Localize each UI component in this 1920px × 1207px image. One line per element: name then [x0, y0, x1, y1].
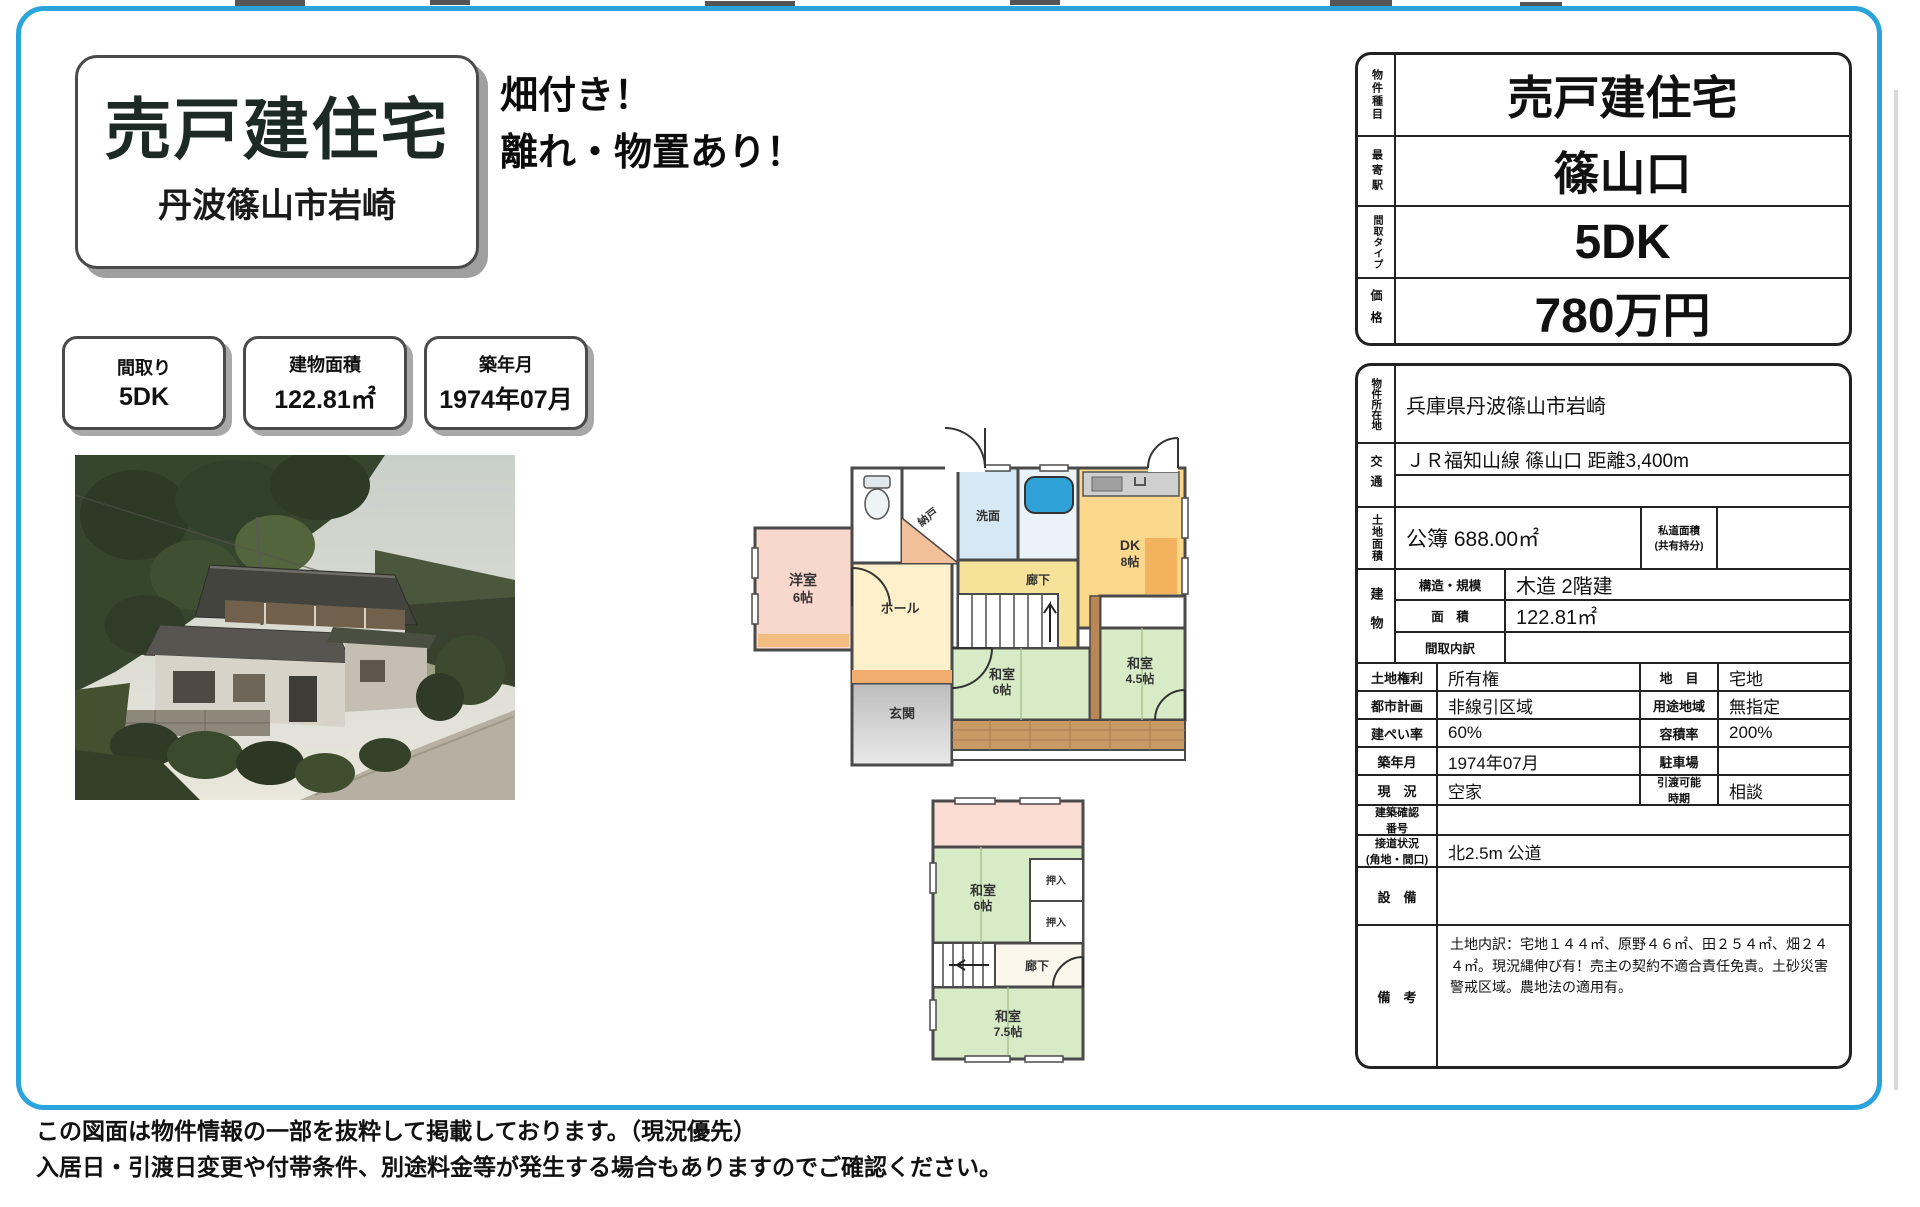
catch-line-2: 離れ・物置あり！ — [500, 125, 804, 182]
row-value: 兵庫県丹波篠山市岩崎 — [1396, 366, 1849, 442]
detail-row-current-state: 現 況 空家 引渡可能 時期 相談 — [1358, 774, 1849, 804]
pair-label-2: 容積率 — [1641, 720, 1719, 746]
detail-row-land-area: 土地面積 公簿 688.00㎡ 私道面積 (共有持分) — [1358, 506, 1849, 568]
summary-row-type: 物件種目 売戸建住宅 — [1358, 55, 1849, 135]
floorplan-2f: 和室 6帖 押入 押入 廊下 和室 7.5帖 — [925, 795, 1090, 1067]
pair-value-1: 非線引区域 — [1438, 692, 1641, 718]
full-label: 設 備 — [1358, 868, 1438, 924]
pair-label-2: 用途地域 — [1641, 692, 1719, 718]
row-label: 間取タイプ — [1371, 215, 1381, 270]
land-area-value: 公簿 688.00㎡ — [1396, 508, 1642, 568]
room-label-dk: DK — [1120, 537, 1140, 553]
info-label: 築年月 — [479, 351, 533, 377]
info-label: 建物面積 — [289, 351, 361, 377]
detail-row-transport: 交通 ＪＲ福知山線 篠山口 距離3,400m — [1358, 442, 1849, 506]
building-layout-value — [1506, 633, 1849, 662]
info-label: 間取り — [117, 354, 171, 380]
page-title: 売戸建住宅 — [105, 97, 450, 164]
row-label: 最寄駅 — [1371, 149, 1382, 194]
room-label-yoshitsu: 洋室 — [789, 572, 817, 588]
building-layout-label: 間取内訳 — [1396, 633, 1506, 662]
row-label: 物件種目 — [1371, 69, 1382, 121]
summary-row-price: 価格 780万円 — [1358, 277, 1849, 343]
catch-copy: 畑付き！ 離れ・物置あり！ — [500, 68, 804, 182]
row-value: 780万円 — [1396, 279, 1849, 343]
pair-value-2: 宅地 — [1719, 664, 1849, 690]
pair-value-1: 空家 — [1438, 776, 1641, 804]
detail-row-building: 建物 構造・規模 木造 2階建 面 積 122.81㎡ 間取内訳 — [1358, 568, 1849, 662]
full-label: 接道状況 (角地・間口) — [1358, 836, 1438, 866]
pair-label-2: 引渡可能 時期 — [1641, 776, 1719, 804]
private-road-label: 私道面積 (共有持分) — [1642, 508, 1718, 568]
detail-row-road-access: 接道状況 (角地・間口) 北2.5m 公道 — [1358, 834, 1849, 866]
room-label-2f-washitsu6: 和室 — [970, 883, 996, 898]
info-box-built: 築年月 1974年07月 — [424, 336, 588, 430]
row-label: 交通 — [1370, 455, 1382, 495]
room-label-washitsu45: 和室 — [1127, 656, 1153, 671]
room-size-yoshitsu: 6帖 — [793, 590, 813, 605]
building-structure-value: 木造 2階建 — [1506, 570, 1849, 599]
pair-value-2: 相談 — [1719, 776, 1849, 804]
row-value: ＪＲ福知山線 篠山口 距離3,400m — [1396, 444, 1849, 474]
room-size-washitsu45: 4.5帖 — [1126, 671, 1155, 686]
room-size-2f-washitsu6: 6帖 — [974, 898, 993, 913]
detail-row-facilities: 設 備 — [1358, 866, 1849, 924]
row-value: 売戸建住宅 — [1396, 55, 1849, 135]
scan-edge — [1894, 90, 1898, 1090]
room-label-rouka: 廊下 — [1026, 572, 1050, 587]
pair-value-2: 200% — [1719, 720, 1849, 746]
pair-value-2: 無指定 — [1719, 692, 1849, 718]
catch-line-1: 畑付き！ — [500, 68, 804, 125]
row-label: 物件所在地 — [1371, 378, 1382, 431]
scan-artifact — [1010, 0, 1060, 5]
row-label: 土地面積 — [1371, 514, 1382, 562]
full-value: 北2.5m 公道 — [1438, 836, 1849, 866]
full-value — [1438, 806, 1849, 834]
detail-row-city-planning: 都市計画 非線引区域 用途地域 無指定 — [1358, 690, 1849, 718]
closet-label-oshiire: 押入 — [1046, 916, 1066, 929]
detail-table: 物件所在地 兵庫県丹波篠山市岩崎 交通 ＪＲ福知山線 篠山口 距離3,400m … — [1355, 363, 1852, 1069]
building-area-label: 面 積 — [1396, 601, 1506, 630]
row-label: 価格 — [1370, 289, 1382, 333]
info-value: 1974年07月 — [439, 380, 572, 416]
pair-label-1: 現 況 — [1358, 776, 1438, 804]
pair-label-2: 駐車場 — [1641, 748, 1719, 774]
room-label-2f-rouka: 廊下 — [1025, 958, 1049, 973]
info-value: 5DK — [119, 383, 169, 412]
detail-row-building-confirmation: 建築確認 番号 — [1358, 804, 1849, 834]
room-size-2f-washitsu75: 7.5帖 — [994, 1024, 1023, 1039]
summary-table: 物件種目 売戸建住宅 最寄駅 篠山口 間取タイプ 5DK 価格 780万円 — [1355, 52, 1852, 346]
pair-label-1: 建ぺい率 — [1358, 720, 1438, 746]
row-value: 5DK — [1396, 207, 1849, 277]
row-label: 建物 — [1370, 587, 1383, 645]
info-box-area: 建物面積 122.81㎡ — [243, 336, 407, 430]
building-area-value: 122.81㎡ — [1506, 601, 1849, 630]
closet-label-oshiire: 押入 — [1046, 874, 1066, 887]
pair-value-1: 60% — [1438, 720, 1641, 746]
detail-row-land-rights: 土地権利 所有権 地 目 宅地 — [1358, 662, 1849, 690]
info-boxes: 間取り 5DK 建物面積 122.81㎡ 築年月 1974年07月 — [62, 336, 588, 430]
footer-notes: この図面は物件情報の一部を抜粋して掲載しております。（現況優先） 入居日・引渡日… — [36, 1114, 1002, 1185]
title-box: 売戸建住宅 丹波篠山市岩崎 — [75, 55, 479, 269]
room-label-genkan: 玄関 — [889, 706, 915, 721]
pair-value-1: 所有権 — [1438, 664, 1641, 690]
pair-label-2: 地 目 — [1641, 664, 1719, 690]
pair-value-1: 1974年07月 — [1438, 748, 1641, 774]
info-value: 122.81㎡ — [274, 380, 375, 416]
row-value-2 — [1396, 476, 1849, 506]
remarks-text: 土地内訳：宅地１４４㎡、原野４６㎡、田２５４㎡、畑２４４㎡。現況縄伸び有！売主の… — [1438, 926, 1849, 1066]
detail-row-location: 物件所在地 兵庫県丹波篠山市岩崎 — [1358, 366, 1849, 442]
pair-label-1: 築年月 — [1358, 748, 1438, 774]
full-value — [1438, 868, 1849, 924]
info-box-madori: 間取り 5DK — [62, 336, 226, 430]
full-label: 建築確認 番号 — [1358, 806, 1438, 834]
room-size-dk: 8帖 — [1121, 554, 1140, 569]
room-size-washitsu6: 6帖 — [993, 682, 1012, 697]
room-label-washitsu6: 和室 — [989, 667, 1015, 682]
row-value: 篠山口 — [1396, 137, 1849, 205]
full-label: 備 考 — [1358, 926, 1438, 1066]
footer-line-2: 入居日・引渡日変更や付帯条件、別途料金等が発生する場合もありますのでご確認くださ… — [36, 1150, 1002, 1186]
floorplan-1f: 洋室 6帖 納戸 洗面 DK 8帖 廊下 ホール 玄関 和室 6帖 和室 4.5… — [740, 398, 1190, 770]
pair-label-1: 土地権利 — [1358, 664, 1438, 690]
pair-value-2 — [1719, 748, 1849, 774]
private-road-value — [1718, 508, 1849, 568]
room-label-hall: ホール — [880, 601, 919, 616]
footer-line-1: この図面は物件情報の一部を抜粋して掲載しております。（現況優先） — [36, 1114, 1002, 1150]
property-photo — [75, 455, 515, 800]
detail-row-built-date: 築年月 1974年07月 駐車場 — [1358, 746, 1849, 774]
room-label-senmen: 洗面 — [976, 508, 1000, 523]
summary-row-layout: 間取タイプ 5DK — [1358, 205, 1849, 277]
detail-row-coverage: 建ぺい率 60% 容積率 200% — [1358, 718, 1849, 746]
scan-artifact — [430, 0, 470, 5]
page-subtitle: 丹波篠山市岩崎 — [158, 178, 396, 227]
room-label-2f-washitsu75: 和室 — [995, 1009, 1021, 1024]
building-structure-label: 構造・規模 — [1396, 570, 1506, 599]
pair-label-1: 都市計画 — [1358, 692, 1438, 718]
flyer-page: 売戸建住宅 丹波篠山市岩崎 畑付き！ 離れ・物置あり！ 間取り 5DK 建物面積… — [0, 0, 1920, 1207]
detail-row-remarks: 備 考 土地内訳：宅地１４４㎡、原野４６㎡、田２５４㎡、畑２４４㎡。現況縄伸び有… — [1358, 924, 1849, 1066]
summary-row-station: 最寄駅 篠山口 — [1358, 135, 1849, 205]
